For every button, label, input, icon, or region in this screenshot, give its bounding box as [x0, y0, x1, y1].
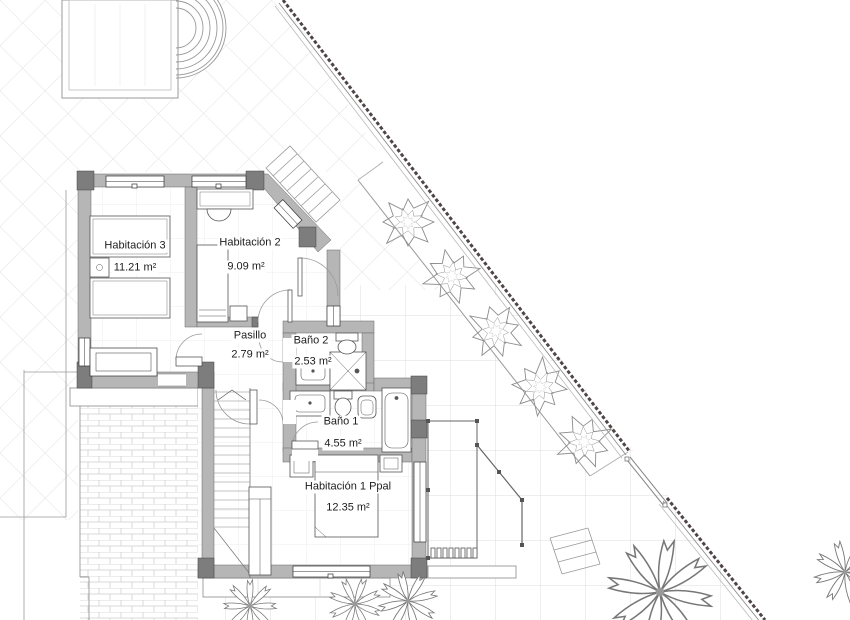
window-icon — [327, 306, 340, 326]
room-area-pasillo: 2.79 m² — [229, 349, 270, 362]
room-area-hab2: 9.09 m² — [225, 261, 266, 274]
room-area-hab3: 11.21 m² — [112, 262, 159, 275]
room-label-hab2: Habitación 2 — [217, 237, 282, 250]
bidet-icon — [358, 396, 376, 418]
floor-plan-drawing — [0, 0, 850, 620]
window-icon — [293, 566, 370, 578]
nightstand — [380, 455, 402, 472]
wardrobe — [249, 487, 271, 575]
toilet-icon — [334, 391, 352, 416]
bed — [90, 278, 170, 318]
room-label-bano1: Baño 1 — [322, 416, 361, 429]
shower-icon — [330, 352, 366, 390]
window-icon — [414, 462, 426, 542]
window-icon — [106, 176, 164, 188]
bed — [197, 245, 228, 322]
room-label-hab3: Habitación 3 — [102, 240, 167, 253]
bathtub-icon — [382, 388, 411, 452]
closet — [197, 189, 253, 209]
brick-paving — [80, 385, 198, 620]
nightstand — [230, 306, 247, 321]
room-area-bano2: 2.53 m² — [292, 356, 333, 369]
room-label-pasillo: Pasillo — [232, 330, 268, 343]
nightstand — [90, 258, 109, 277]
window-icon — [90, 348, 157, 376]
bed — [315, 455, 378, 537]
window-icon — [79, 338, 90, 366]
room-label-hab1: Habitación 1 Ppal — [303, 481, 393, 494]
room-area-bano1: 4.55 m² — [322, 438, 363, 451]
room-area-hab1: 12.35 m² — [324, 502, 371, 515]
toilet-icon — [336, 333, 358, 354]
room-label-bano2: Baño 2 — [292, 335, 331, 348]
window-icon — [192, 176, 246, 188]
floor-plan-canvas: Habitación 3 11.21 m² Habitación 2 9.09 … — [0, 0, 850, 620]
